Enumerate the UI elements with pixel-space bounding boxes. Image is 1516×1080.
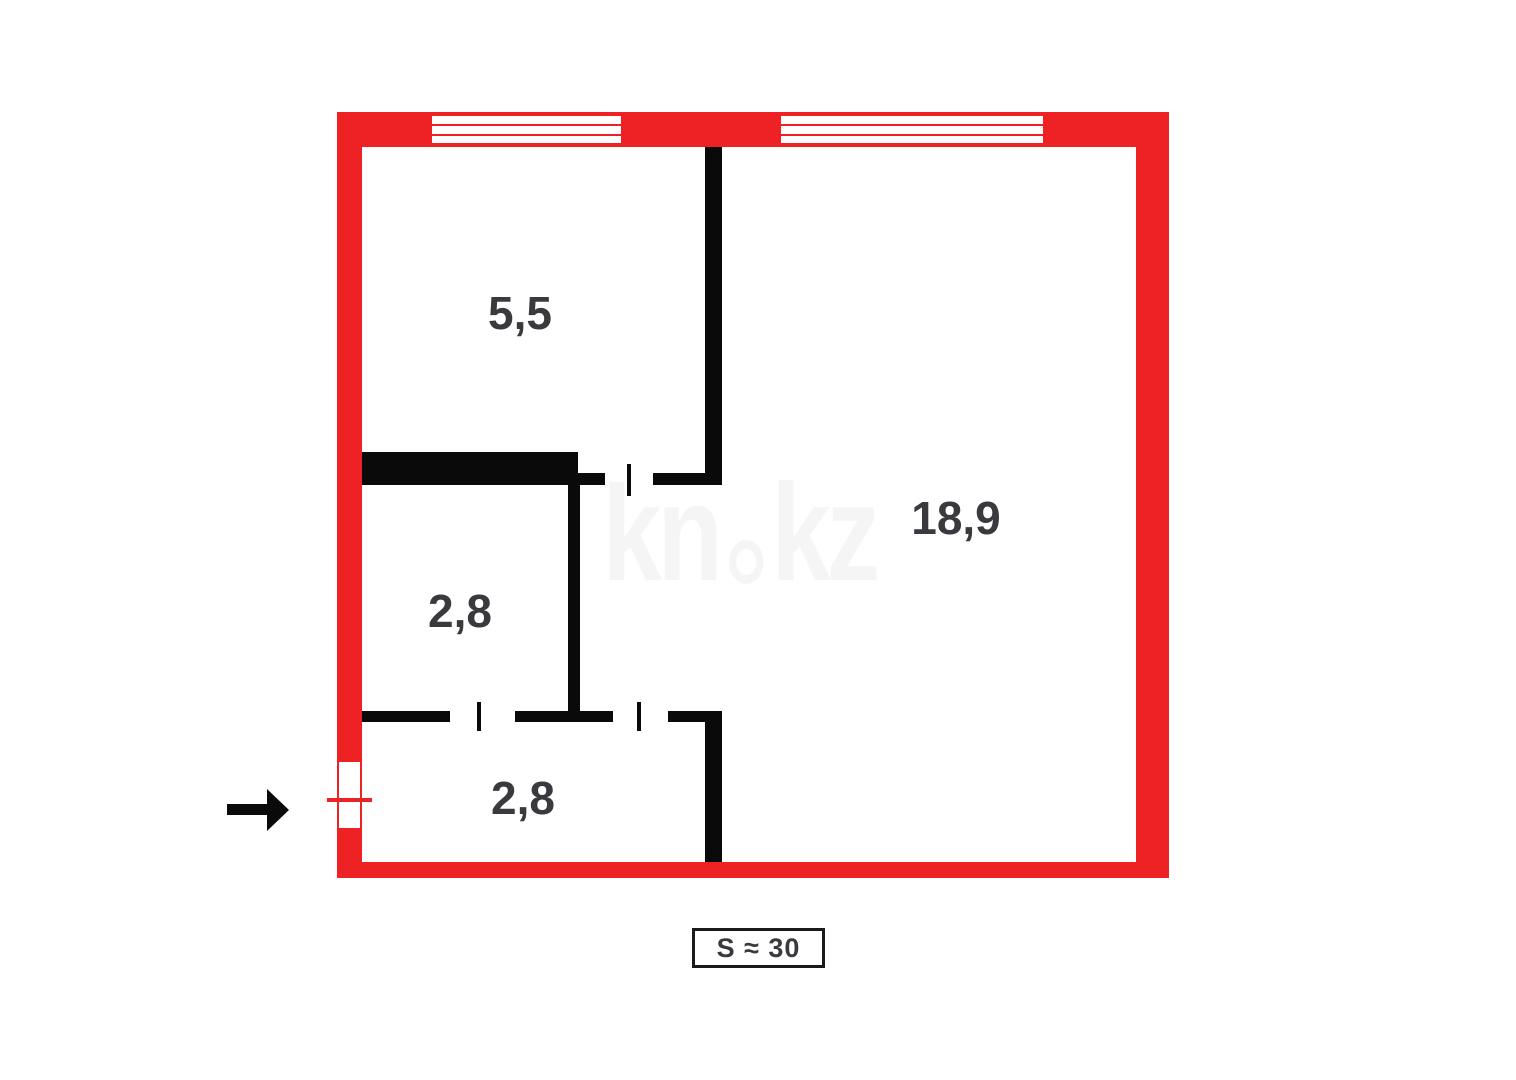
window-mullion — [432, 134, 621, 136]
window-mullion — [432, 124, 621, 126]
kn-kz-watermark: kn kz — [602, 478, 876, 588]
wall-hallway-top-middle-segment — [515, 711, 613, 722]
entrance-door-tick — [327, 798, 372, 802]
outer-wall-bottom — [337, 862, 1169, 878]
window-left — [430, 114, 623, 145]
entrance-arrow-head — [267, 789, 289, 831]
wall-kitchen-right — [705, 147, 722, 485]
window-mullion — [781, 124, 1043, 126]
floor-plan-canvas: kn kz 5,5 18,9 2,8 2,8 S ≈ 3 — [0, 0, 1516, 1080]
wall-hallway-top-left-segment — [362, 711, 450, 722]
total-area-badge: S ≈ 30 — [692, 928, 825, 968]
outer-wall-right — [1136, 112, 1169, 878]
watermark-text-right: kz — [771, 478, 875, 588]
entrance-door-opening — [337, 760, 362, 830]
room-area-label-kitchen: 5,5 — [488, 286, 552, 340]
window-right — [779, 114, 1045, 145]
wall-kitchen-bottom-thick — [362, 452, 578, 485]
room-area-label-hallway: 2,8 — [491, 771, 555, 825]
room-area-label-living: 18,9 — [911, 491, 1001, 545]
bathroom-door-tick — [477, 702, 481, 731]
bathroom-door-slot — [450, 713, 515, 719]
total-area-label: S ≈ 30 — [717, 933, 801, 964]
room-area-label-bathroom: 2,8 — [428, 584, 492, 638]
living-door-tick — [637, 702, 641, 731]
entrance-arrow-shaft — [227, 804, 269, 815]
wall-hallway-right — [705, 711, 722, 862]
kitchen-door-tick — [627, 464, 631, 496]
wall-hallway-top-right-segment — [668, 711, 705, 722]
window-mullion — [781, 134, 1043, 136]
watermark-text-left: kn — [602, 478, 718, 588]
wall-kitchen-door-left-segment — [578, 473, 605, 485]
wall-kitchen-door-right-segment — [653, 473, 705, 485]
watermark-dot-icon — [729, 540, 763, 584]
wall-bathroom-right — [568, 485, 580, 712]
